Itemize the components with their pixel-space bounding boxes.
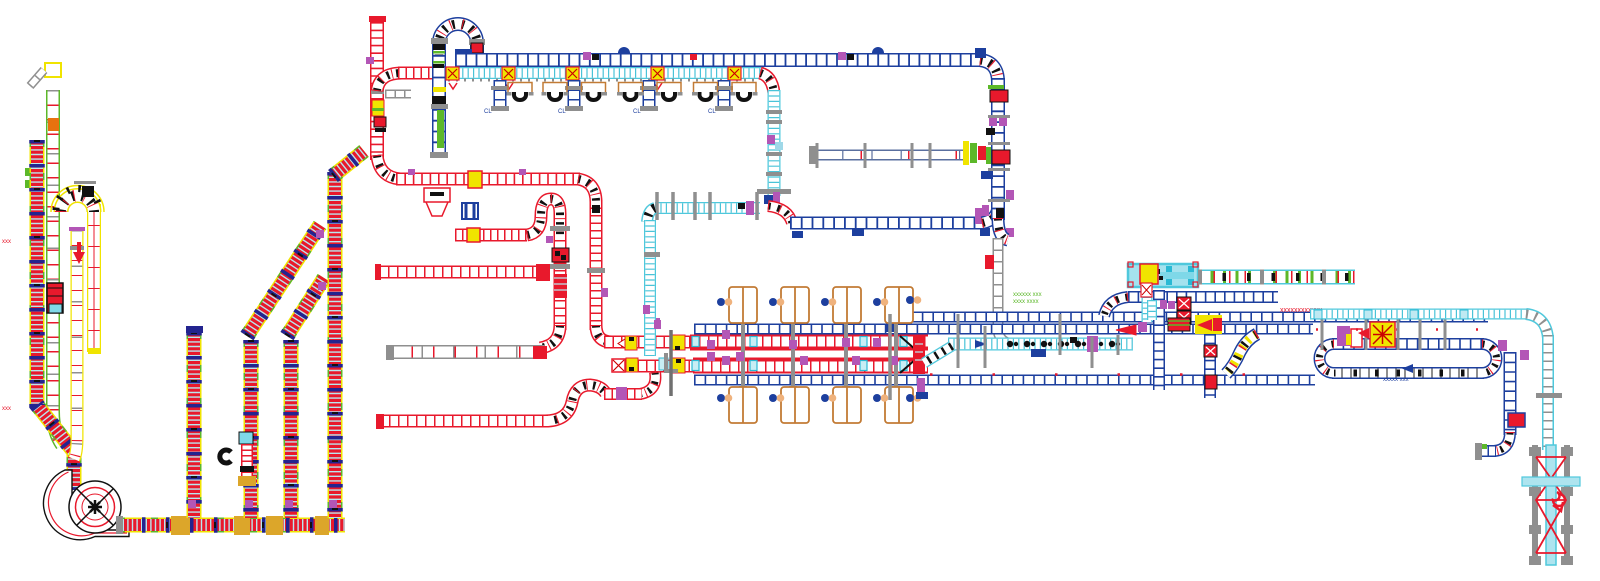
svg-text:CL: CL: [633, 109, 641, 115]
svg-text:xxxxxx xxx: xxxxxx xxx: [1013, 292, 1042, 298]
svg-text:CL: CL: [558, 109, 566, 115]
svg-text:CL: CL: [484, 109, 492, 115]
svg-text:xxx: xxx: [2, 239, 11, 245]
svg-text:xxx: xxx: [2, 406, 11, 412]
svg-text:xxxx xxxx: xxxx xxxx: [1013, 299, 1039, 305]
svg-text:xxxxx xxx: xxxxx xxx: [1383, 377, 1409, 383]
svg-text:CL: CL: [708, 109, 716, 115]
